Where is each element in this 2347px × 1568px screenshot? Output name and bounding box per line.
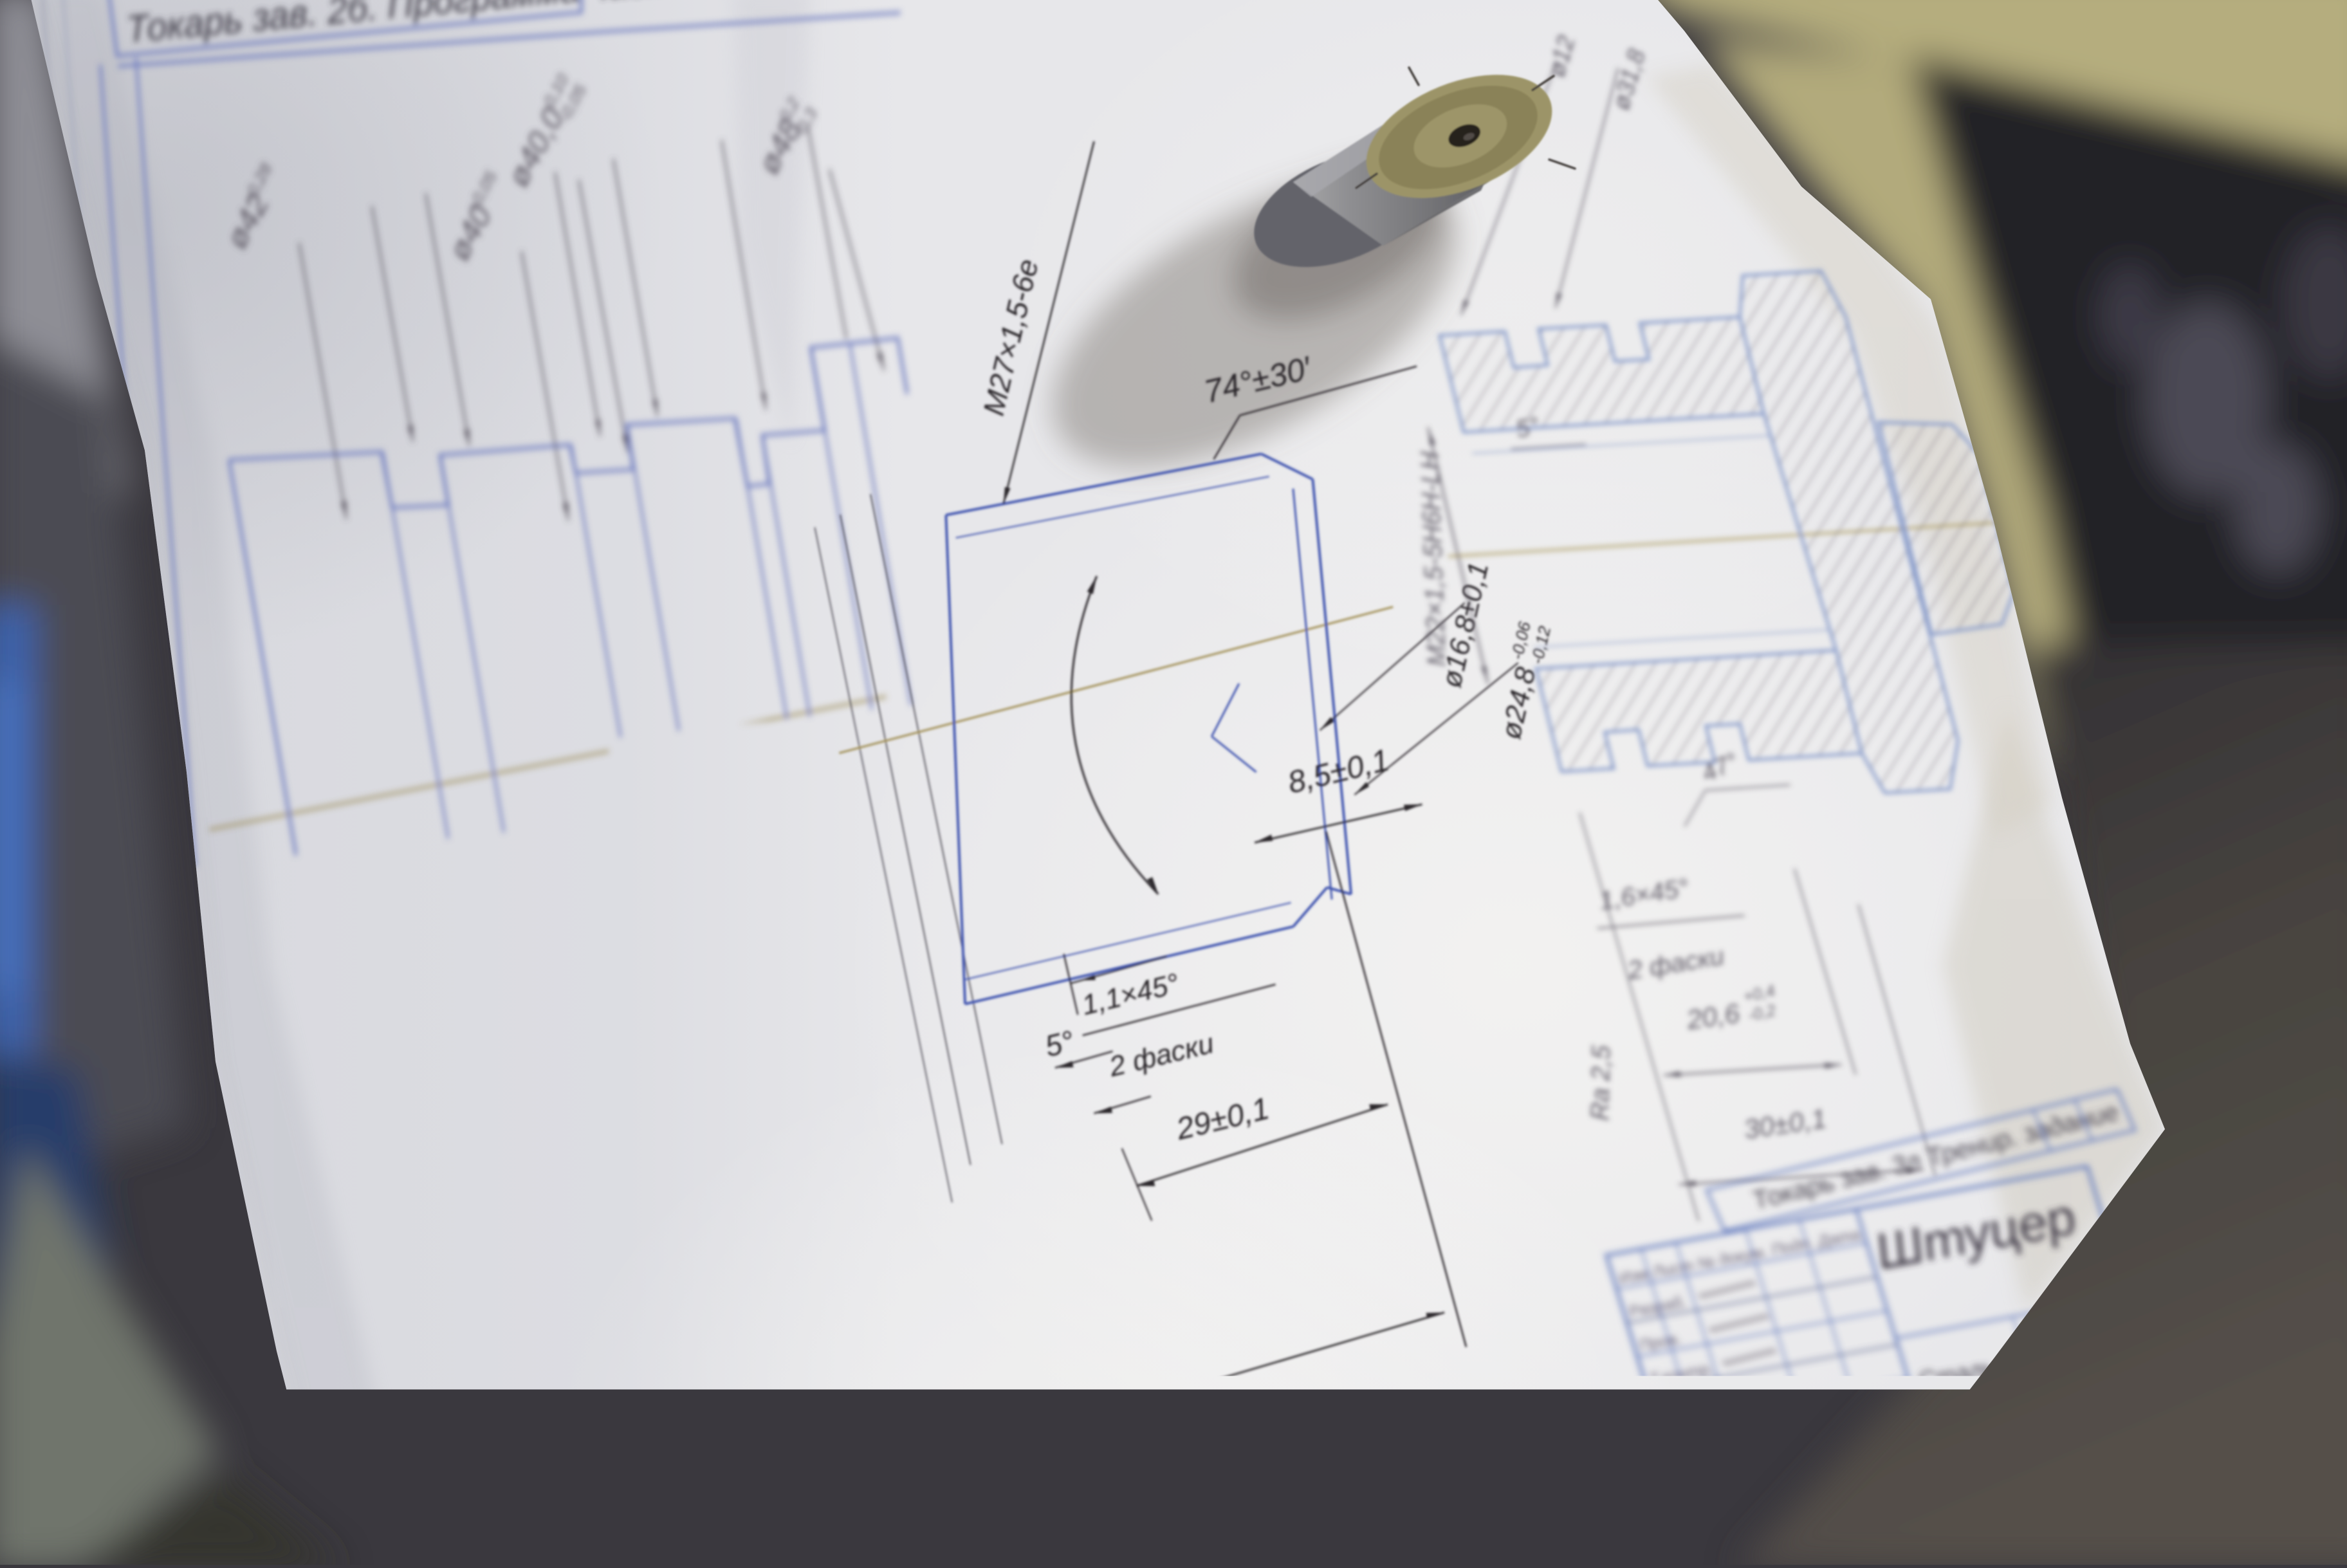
svg-text:10: 10	[641, 1087, 674, 1124]
svg-text:4: 4	[545, 1204, 562, 1237]
svg-text:Ra 2,5: Ra 2,5	[1586, 1044, 1616, 1121]
svg-text:4,5: 4,5	[777, 1084, 818, 1122]
svg-text:-0,3: -0,3	[568, 1252, 600, 1276]
svg-text:-0,4: -0,4	[739, 1322, 771, 1346]
svg-text:-0,3: -0,3	[737, 1299, 769, 1323]
svg-text:-0,2: -0,2	[824, 1075, 856, 1098]
svg-text:-0,6: -0,6	[825, 1098, 857, 1121]
svg-text:45: 45	[529, 1239, 565, 1278]
svg-text:80: 80	[699, 1309, 735, 1348]
